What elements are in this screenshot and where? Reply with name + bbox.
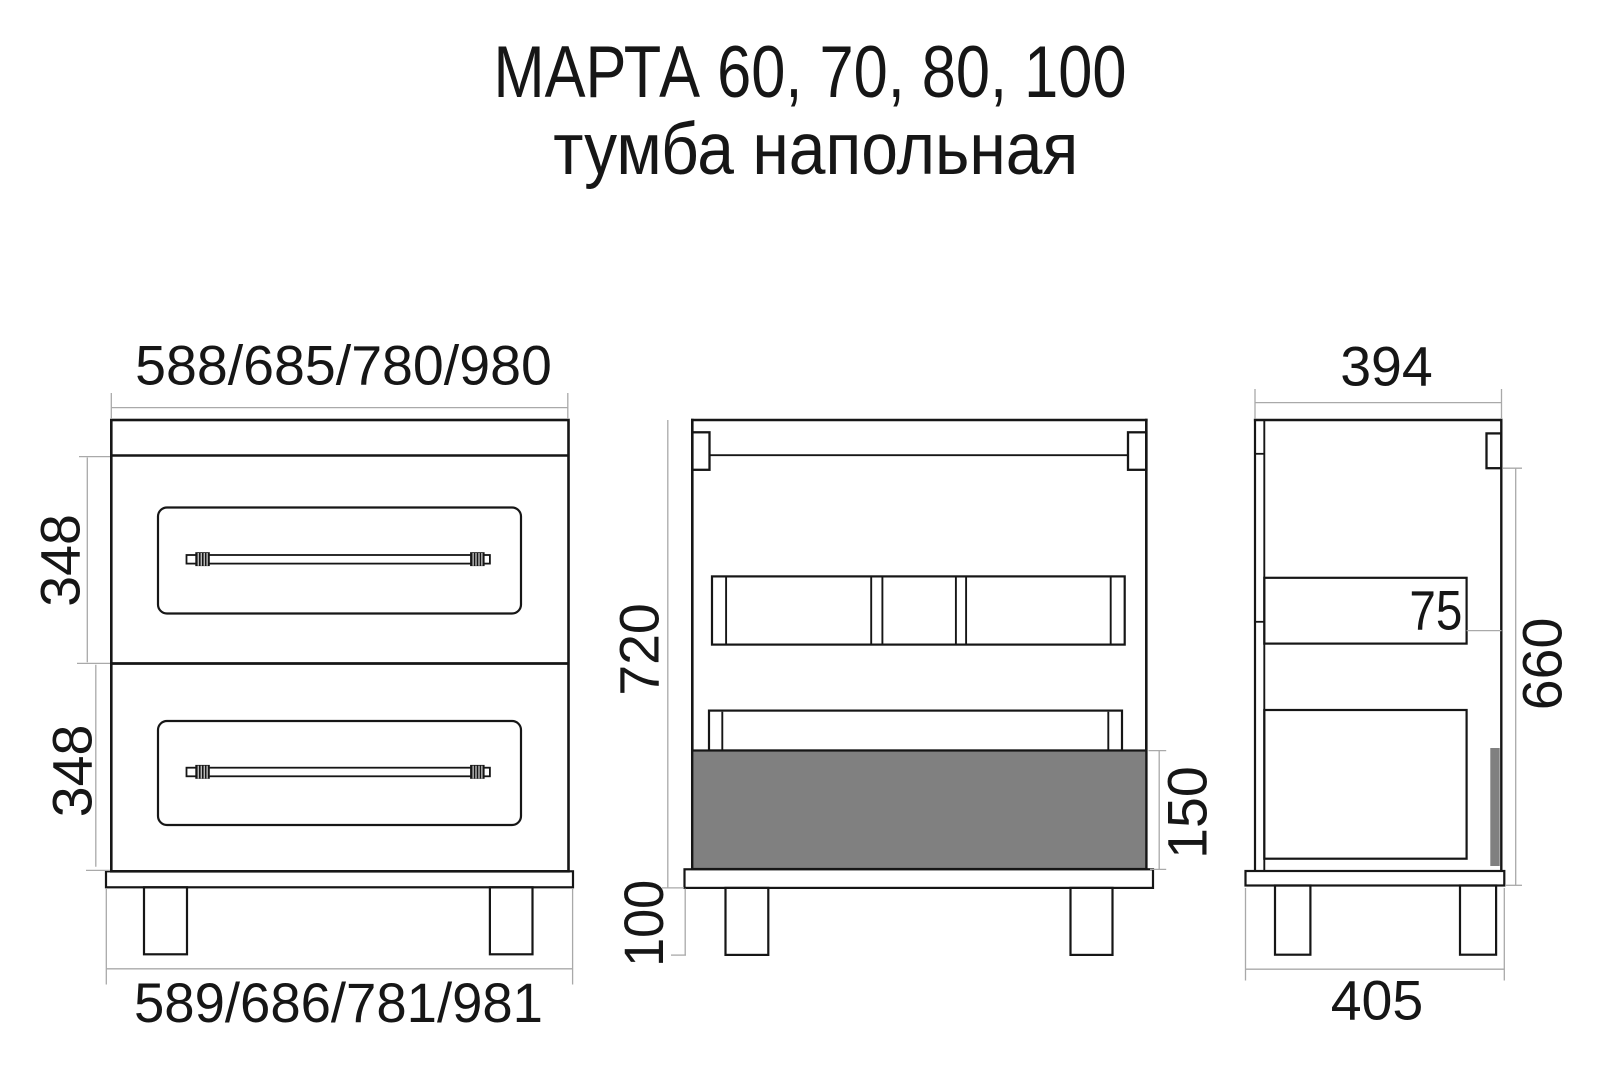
svg-text:150: 150 <box>1157 766 1219 859</box>
svg-text:405: 405 <box>1331 970 1424 1032</box>
svg-text:тумба напольная: тумба напольная <box>553 109 1078 190</box>
svg-text:588/685/780/980: 588/685/780/980 <box>135 335 552 397</box>
svg-text:75: 75 <box>1409 580 1462 642</box>
svg-text:589/686/781/981: 589/686/781/981 <box>134 972 543 1034</box>
svg-text:МАРТА 60, 70, 80, 100: МАРТА 60, 70, 80, 100 <box>494 32 1127 113</box>
svg-text:348: 348 <box>30 514 92 607</box>
svg-text:348: 348 <box>42 725 104 818</box>
svg-text:100: 100 <box>613 880 675 967</box>
svg-text:394: 394 <box>1340 336 1433 398</box>
svg-text:660: 660 <box>1511 618 1573 711</box>
svg-text:720: 720 <box>609 603 671 696</box>
